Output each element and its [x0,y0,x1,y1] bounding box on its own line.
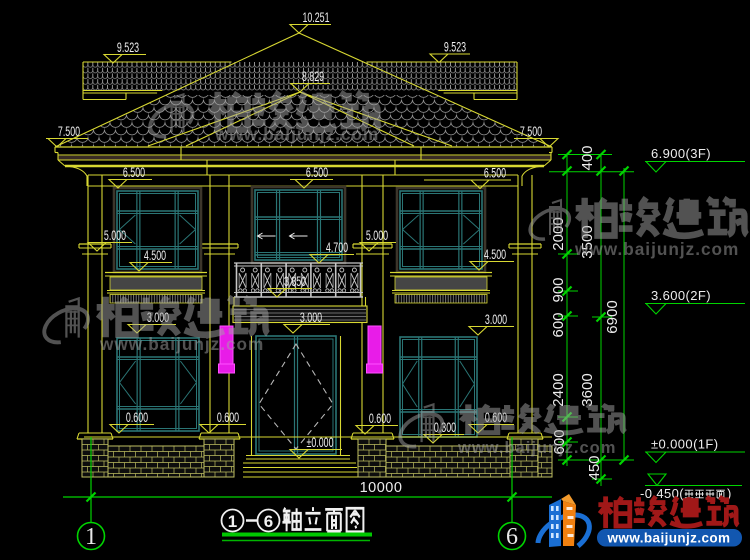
svg-text:2400: 2400 [550,373,567,406]
svg-text:0.600: 0.600 [369,411,391,426]
svg-text:1: 1 [228,512,237,531]
svg-text:5.000: 5.000 [104,228,126,243]
svg-text:4.500: 4.500 [484,247,506,262]
svg-text:6.500: 6.500 [484,166,506,181]
svg-text:3.000: 3.000 [300,310,322,325]
svg-text:www.baijunjz.com: www.baijunjz.com [214,124,379,144]
svg-text:www.baijunjz.com: www.baijunjz.com [457,439,616,457]
svg-text:7.500: 7.500 [58,124,80,139]
svg-text:10.251: 10.251 [302,10,329,25]
svg-text:0.300: 0.300 [434,420,456,435]
svg-text:7.500: 7.500 [520,124,542,139]
svg-text:6900: 6900 [604,300,621,333]
svg-text:3.000: 3.000 [485,312,507,327]
svg-text:6: 6 [506,524,518,550]
svg-text:6: 6 [264,512,273,531]
svg-text:4.500: 4.500 [144,248,166,263]
svg-text:1: 1 [85,524,97,550]
svg-text:9.523: 9.523 [444,40,466,55]
svg-text:450: 450 [586,455,603,480]
svg-text:9.523: 9.523 [117,40,139,55]
svg-text:3.850: 3.850 [284,274,306,289]
svg-text:www.baijunjz.com: www.baijunjz.com [607,531,731,546]
svg-text:3600: 3600 [579,373,596,406]
svg-text:±0.000(1F): ±0.000(1F) [651,437,719,452]
svg-text:6.900(3F): 6.900(3F) [651,146,711,161]
svg-text:400: 400 [579,145,596,170]
svg-text:900: 900 [550,277,567,302]
svg-text:www.baijunjz.com: www.baijunjz.com [99,334,264,354]
svg-text:8.829: 8.829 [302,69,324,84]
svg-text:600: 600 [550,312,567,337]
svg-text:6.500: 6.500 [306,165,328,180]
svg-text:www.baijunjz.com: www.baijunjz.com [574,239,739,259]
svg-text:6.500: 6.500 [123,165,145,180]
svg-text:0.600: 0.600 [217,410,239,425]
svg-text:±0.000: ±0.000 [306,435,333,450]
svg-text:10000: 10000 [360,480,403,496]
svg-text:3.600(2F): 3.600(2F) [651,288,711,303]
svg-text:5.000: 5.000 [366,228,388,243]
svg-text:4.700: 4.700 [326,240,348,255]
svg-text:0.600: 0.600 [126,410,148,425]
